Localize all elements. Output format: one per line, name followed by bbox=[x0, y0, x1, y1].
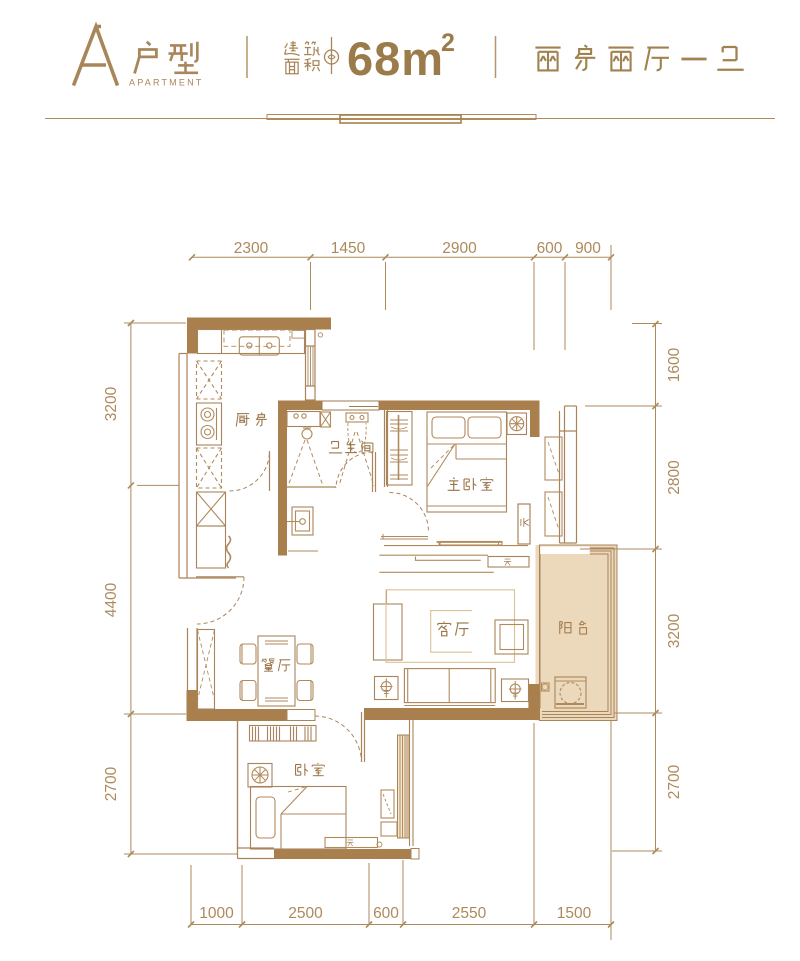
svg-text:1500: 1500 bbox=[557, 905, 592, 922]
svg-text:1000: 1000 bbox=[199, 905, 234, 922]
svg-text:600: 600 bbox=[537, 240, 563, 257]
svg-text:2500: 2500 bbox=[288, 905, 323, 922]
svg-text:2900: 2900 bbox=[442, 240, 477, 257]
svg-text:2: 2 bbox=[441, 29, 455, 57]
svg-text:600: 600 bbox=[373, 905, 399, 922]
svg-text:900: 900 bbox=[575, 240, 601, 257]
svg-text:3200: 3200 bbox=[666, 613, 683, 648]
svg-text:APARTMENT: APARTMENT bbox=[129, 78, 203, 88]
svg-text:68m: 68m bbox=[347, 32, 444, 85]
svg-text:2700: 2700 bbox=[103, 766, 120, 801]
svg-text:2550: 2550 bbox=[452, 905, 487, 922]
svg-text:3200: 3200 bbox=[103, 386, 120, 421]
svg-text:1450: 1450 bbox=[331, 240, 366, 257]
svg-text:4400: 4400 bbox=[103, 582, 120, 617]
svg-text:2700: 2700 bbox=[666, 764, 683, 799]
svg-text:2800: 2800 bbox=[666, 460, 683, 495]
svg-text:1600: 1600 bbox=[666, 347, 683, 382]
svg-text:2300: 2300 bbox=[234, 240, 269, 257]
